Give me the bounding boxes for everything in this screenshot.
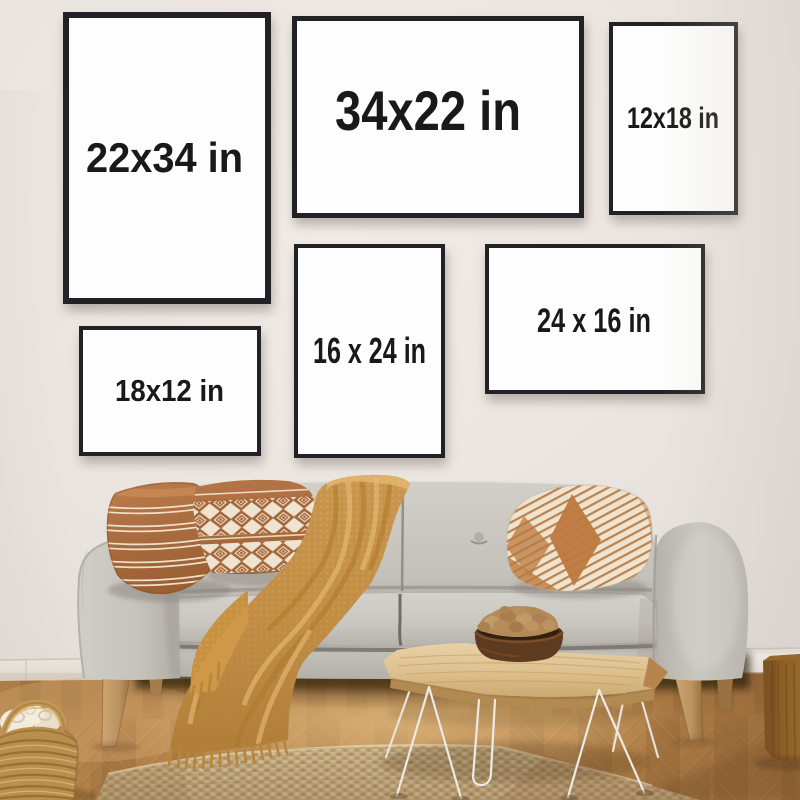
svg-text:18x12 in: 18x12 in <box>115 373 224 408</box>
svg-text:16 x 24 in: 16 x 24 in <box>313 330 426 371</box>
svg-text:34x22 in: 34x22 in <box>335 79 521 142</box>
svg-text:22x34 in: 22x34 in <box>86 134 243 181</box>
svg-text:24 x 16 in: 24 x 16 in <box>537 302 651 340</box>
